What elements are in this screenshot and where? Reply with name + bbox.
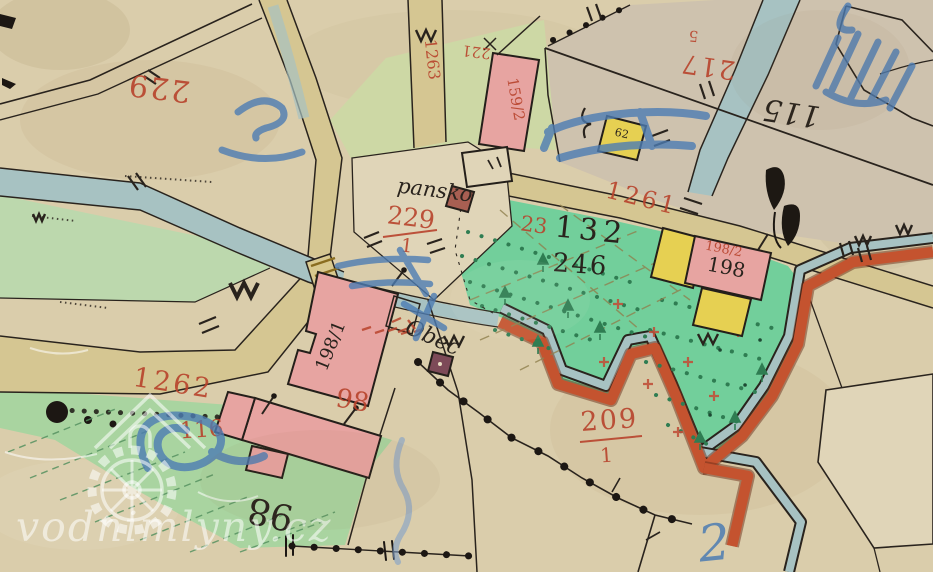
building-obec-dot [438, 362, 442, 366]
parcel-number-229-1-num: 229 [386, 200, 437, 235]
cadastral-map-scan: 229 221 217 5 115 159/2 1263 pansko 229 … [0, 0, 933, 572]
parcel-number-221: 221 [461, 41, 492, 62]
house-number-98-red: 98 [333, 383, 371, 418]
flag-dot-1 [271, 393, 277, 399]
building-outline-pansko [462, 147, 512, 187]
parcel-number-23: 23 [519, 211, 549, 238]
flag-dot-3 [401, 267, 407, 273]
map-canvas: 229 221 217 5 115 159/2 1263 pansko 229 … [0, 0, 933, 572]
parcel-number-209-num: 209 [580, 403, 640, 438]
blue-margin-note-2: 2 [694, 513, 733, 572]
parcel-number-5: 5 [688, 27, 699, 46]
boundary-marker-dot [46, 401, 68, 423]
parcel-number-209-den: 1 [599, 443, 613, 468]
